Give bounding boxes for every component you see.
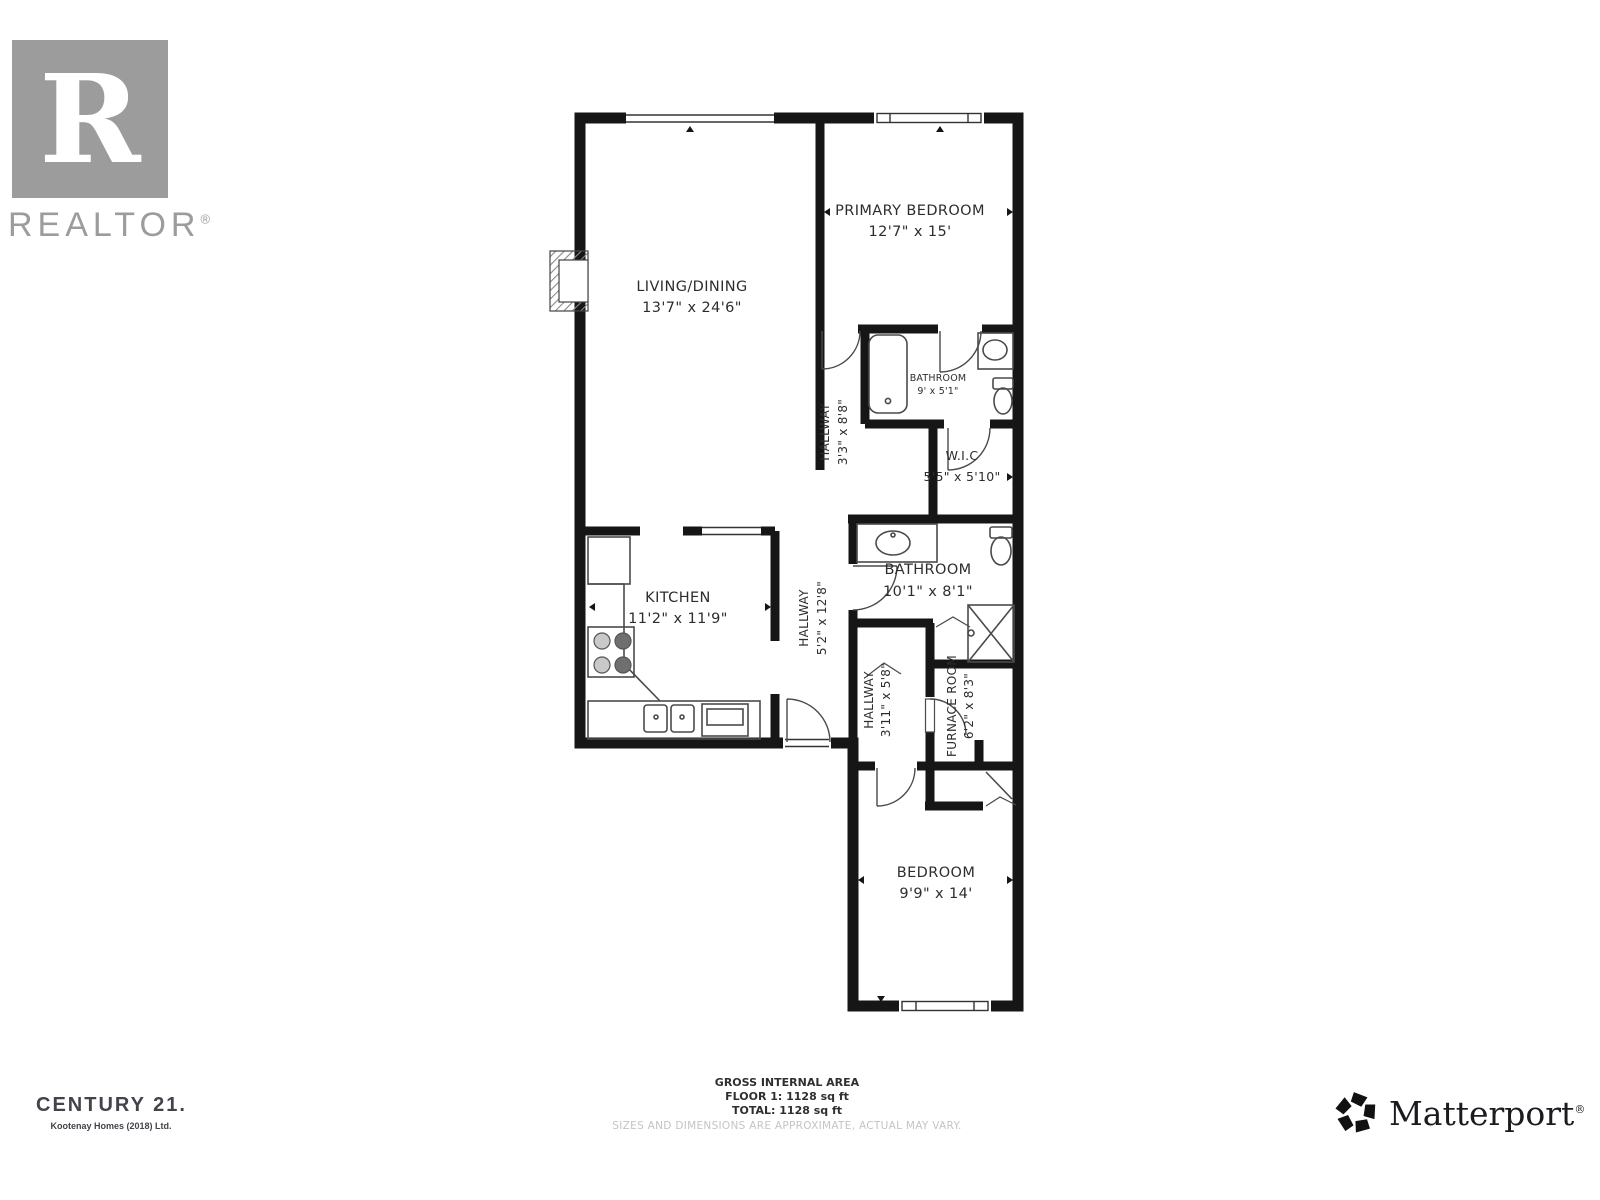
pinwheel-petal (1350, 1115, 1372, 1136)
living-window (626, 111, 774, 125)
room-dims-ensuite-bathroom: 9' x 5'1" (917, 386, 958, 397)
room-label-hallway-lower: HALLWAY (862, 671, 876, 729)
room-label-main-bathroom: BATHROOM (884, 562, 971, 578)
room-dims-bedroom: 9'9" x 14' (899, 886, 972, 902)
gross-internal-area-title: GROSS INTERNAL AREA (487, 1076, 1087, 1090)
room-dims-furnace-room: 6'2" x 8'3" (962, 673, 976, 739)
room-dims-hallway-upper: 3'3" x 8'8" (836, 399, 850, 465)
primary-bedroom-door-arc (822, 331, 860, 369)
closet-shelf-icon (986, 772, 1012, 799)
floor-plan-page: R REALTOR® (0, 0, 1600, 1200)
dim-arrow (936, 126, 944, 132)
opening-squiggle-bathroom (936, 617, 970, 627)
room-labels: LIVING/DINING 13'7" x 24'6" PRIMARY BEDR… (628, 203, 1000, 902)
century21-wordmark: CENTURY 21. (36, 1094, 216, 1117)
dim-arrow (765, 603, 771, 611)
shower-valve-icon (968, 630, 974, 636)
room-label-kitchen: KITCHEN (645, 590, 711, 606)
room-dims-hallway-main: 5'2" x 12'8" (815, 581, 829, 655)
burner-icon (615, 657, 631, 673)
area-summary: GROSS INTERNAL AREA FLOOR 1: 1128 sq ft … (487, 1076, 1087, 1133)
room-dims-primary-bedroom: 12'7" x 15' (869, 224, 952, 240)
ensuite-sink-icon (983, 340, 1007, 360)
matterport-logo: Matterport® (1333, 1090, 1585, 1136)
pinwheel-petal (1334, 1096, 1353, 1116)
bathroom-vanity-icon (857, 524, 937, 562)
pinwheel-petal (1334, 1111, 1356, 1133)
matterport-reg-mark: ® (1574, 1103, 1585, 1116)
dim-arrow (1007, 876, 1013, 884)
bedroom-door-arc (877, 768, 915, 806)
ensuite-toilet-icon (994, 388, 1012, 414)
dim-arrow (1007, 473, 1013, 481)
disclaimer-text: SIZES AND DIMENSIONS ARE APPROXIMATE, AC… (487, 1119, 1087, 1133)
room-label-ensuite-bathroom: BATHROOM (910, 373, 967, 384)
dim-arrow (1007, 208, 1013, 216)
room-label-hallway-main: HALLWAY (797, 589, 811, 647)
room-label-hallway-upper: HALLWAY (818, 403, 832, 461)
burner-icon (615, 633, 631, 649)
room-label-living-dining: LIVING/DINING (636, 279, 747, 295)
burner-icon (594, 633, 610, 649)
fridge-icon (588, 537, 630, 584)
matterport-word-text: Matterport (1389, 1094, 1574, 1133)
room-label-primary-bedroom: PRIMARY BEDROOM (835, 203, 985, 219)
fireplace-firebox (559, 260, 588, 302)
dishwasher-inner (707, 709, 743, 725)
dim-arrow (686, 126, 694, 132)
bathroom-toilet-icon (991, 537, 1011, 565)
fireplace-icon (550, 251, 588, 311)
bathroom-sink-icon (876, 531, 910, 555)
bathroom-faucet-icon (891, 533, 895, 537)
ensuite-door-arc (940, 331, 981, 372)
front-door-arc (787, 699, 830, 742)
shower-cross-lines (968, 605, 1014, 662)
century21-logo: CENTURY 21. Kootenay Homes (2018) Ltd. (36, 1094, 216, 1131)
burner-icon (594, 657, 610, 673)
floor-plan-drawing: LIVING/DINING 13'7" x 24'6" PRIMARY BEDR… (0, 0, 1600, 1200)
furnace-door-leaf (926, 699, 935, 732)
room-label-furnace-room: FURNACE ROOM (945, 655, 959, 757)
dim-arrow (824, 208, 830, 216)
pinwheel-petal (1351, 1092, 1368, 1107)
room-label-bedroom: BEDROOM (897, 865, 976, 881)
room-dims-hallway-lower: 3'11" x 5'8" (879, 663, 893, 737)
room-dims-kitchen: 11'2" x 11'9" (628, 611, 728, 627)
room-dims-wic: 5'5" x 5'10" (923, 469, 1000, 484)
floor1-area: FLOOR 1: 1128 sq ft (487, 1090, 1087, 1104)
pinwheel-petal (1360, 1102, 1379, 1122)
matterport-wordmark: Matterport® (1389, 1094, 1585, 1133)
room-dims-living-dining: 13'7" x 24'6" (642, 300, 742, 316)
bathtub-icon (869, 335, 907, 413)
matterport-pinwheel-icon (1333, 1090, 1379, 1136)
bathtub-drain-icon (885, 398, 890, 403)
century21-office-name: Kootenay Homes (2018) Ltd. (36, 1121, 186, 1131)
kitchen-cased-opening (702, 528, 761, 535)
room-dims-main-bathroom: 10'1" x 8'1" (883, 584, 973, 600)
room-label-wic: W.I.C (946, 448, 979, 463)
dim-arrow (858, 876, 864, 884)
total-area: TOTAL: 1128 sq ft (487, 1104, 1087, 1118)
dim-arrow (589, 603, 595, 611)
